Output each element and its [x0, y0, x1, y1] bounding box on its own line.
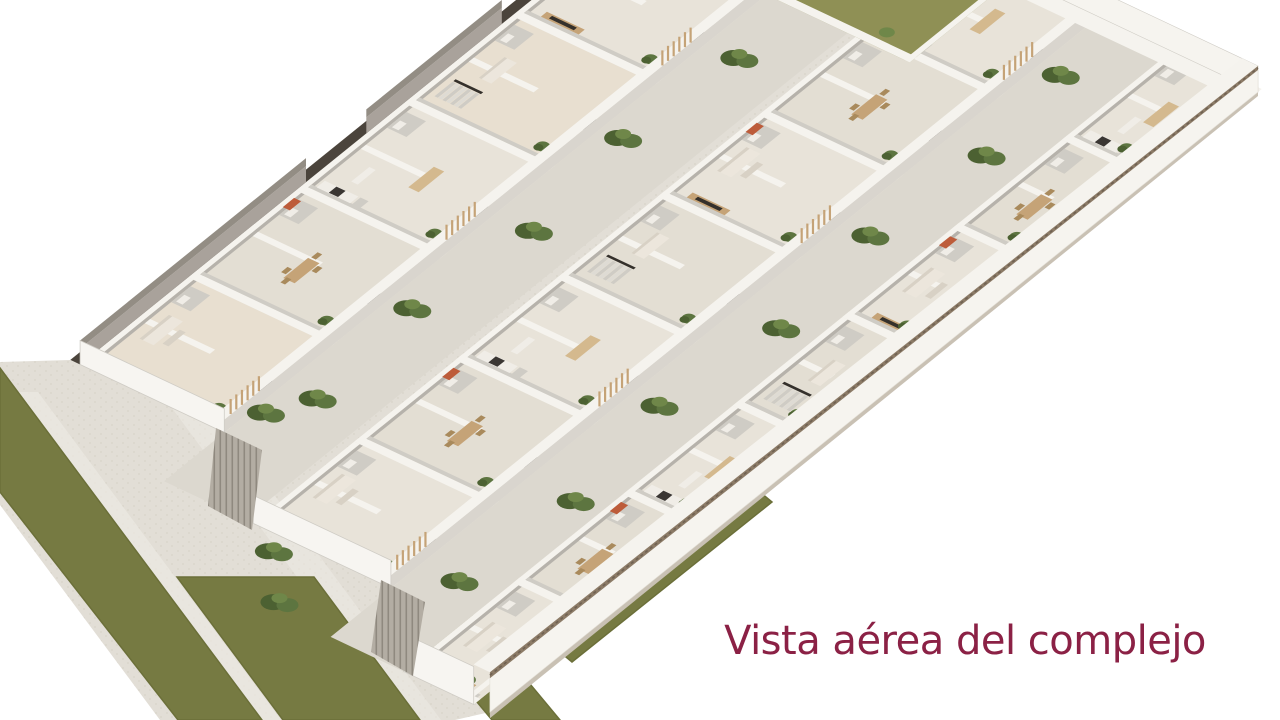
aerial-3d-render [0, 0, 1280, 720]
page-title: Vista aérea del complejo [660, 618, 1270, 664]
slide-canvas: Vista aérea del complejo [0, 0, 1280, 720]
aerial-render-svg [0, 0, 1280, 720]
